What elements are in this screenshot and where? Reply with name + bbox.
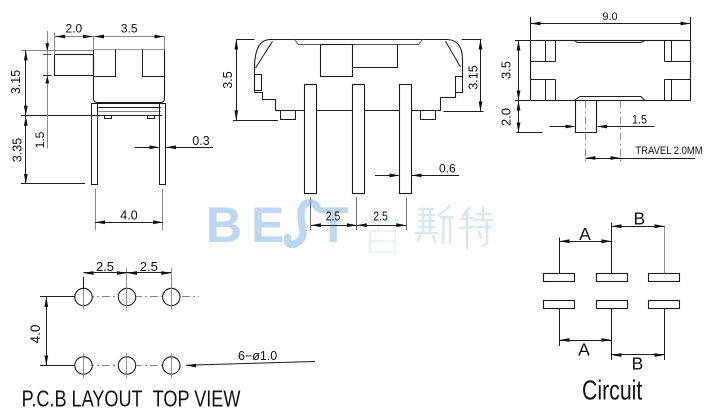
svg-text:3.5: 3.5 — [121, 22, 138, 36]
svg-text:3.15: 3.15 — [467, 65, 481, 89]
svg-text:3.15: 3.15 — [9, 70, 23, 94]
svg-text:TRAVEL 2.0MM: TRAVEL 2.0MM — [635, 145, 702, 157]
svg-text:P.C.B LAYOUT TOP VIEW: P.C.B LAYOUT TOP VIEW — [22, 386, 241, 412]
svg-text:9.0: 9.0 — [602, 11, 617, 23]
svg-text:3.5: 3.5 — [221, 71, 235, 88]
svg-text:2.5: 2.5 — [373, 209, 388, 223]
svg-text:2.5: 2.5 — [96, 259, 114, 274]
svg-text:6−ø1.0: 6−ø1.0 — [238, 349, 277, 363]
svg-text:A: A — [579, 224, 591, 244]
svg-text:4.0: 4.0 — [28, 325, 43, 344]
svg-text:0.3: 0.3 — [192, 134, 209, 148]
svg-text:0.6: 0.6 — [439, 161, 456, 175]
svg-text:B: B — [632, 354, 644, 374]
svg-text:3.35: 3.35 — [11, 138, 25, 162]
svg-text:B: B — [206, 197, 242, 253]
svg-text:2.0: 2.0 — [66, 22, 83, 36]
svg-text:2.0: 2.0 — [499, 108, 514, 126]
svg-text:A: A — [578, 340, 590, 360]
svg-text:2.5: 2.5 — [326, 209, 341, 223]
svg-text:1.5: 1.5 — [33, 131, 47, 148]
svg-text:B: B — [634, 209, 646, 229]
svg-text:2.5: 2.5 — [140, 259, 158, 274]
svg-text:E: E — [251, 197, 284, 253]
svg-text:4.0: 4.0 — [120, 208, 137, 222]
svg-text:Circuit: Circuit — [582, 376, 642, 406]
svg-text:3.5: 3.5 — [499, 61, 514, 79]
svg-text:1.5: 1.5 — [632, 114, 647, 127]
